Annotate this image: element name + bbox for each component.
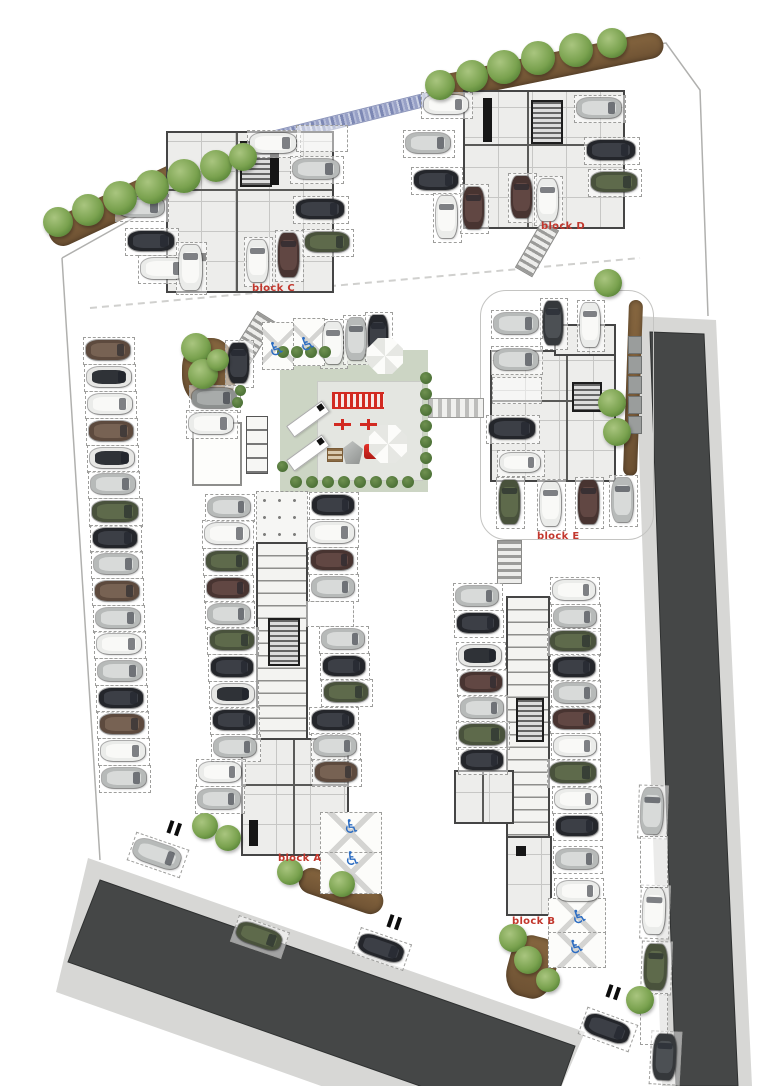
car-roof: [655, 1041, 675, 1073]
car-roof: [464, 727, 500, 741]
car-roof: [317, 713, 350, 727]
footbridge-to-block-e: [428, 398, 484, 418]
car-roof: [106, 744, 140, 758]
car: [580, 303, 600, 347]
car: [511, 176, 532, 218]
car: [97, 634, 141, 654]
car: [324, 682, 368, 702]
car: [652, 1033, 677, 1080]
car-roof: [133, 234, 169, 248]
car: [643, 944, 668, 991]
hedge-bush: [420, 388, 432, 400]
hedge-bush: [235, 385, 246, 396]
car-roof: [559, 739, 592, 753]
car-roof: [218, 713, 251, 727]
car: [95, 581, 139, 601]
car-roof: [104, 691, 138, 705]
parking-spot: [306, 601, 354, 627]
hedge-bush: [277, 461, 288, 472]
wall: [293, 740, 295, 854]
tree: [594, 269, 622, 297]
car: [189, 413, 233, 434]
car: [578, 480, 599, 524]
car: [312, 710, 354, 730]
hedge-bush: [338, 476, 350, 488]
car-roof: [555, 634, 591, 648]
car: [550, 631, 596, 651]
car-roof: [95, 451, 129, 465]
car: [554, 736, 596, 756]
car: [211, 657, 253, 677]
car-roof: [249, 247, 265, 276]
car: [311, 550, 353, 570]
car-roof: [348, 325, 364, 354]
car-roof: [280, 240, 296, 270]
car-roof: [328, 659, 361, 673]
car-roof: [542, 489, 558, 519]
car-roof: [103, 664, 137, 678]
stair-core: [268, 618, 300, 666]
car: [98, 661, 142, 681]
car: [456, 586, 498, 606]
parking-spot: [640, 836, 668, 888]
tree: [229, 143, 257, 171]
car: [305, 232, 349, 252]
car: [553, 580, 595, 600]
car: [86, 340, 130, 360]
hedge-bush: [386, 476, 398, 488]
car-roof: [213, 500, 246, 514]
tree: [192, 813, 218, 839]
car: [587, 140, 635, 160]
car-roof: [204, 765, 237, 779]
wall: [566, 352, 568, 480]
car: [312, 495, 354, 515]
shaft: [516, 846, 526, 856]
car: [554, 683, 596, 703]
car: [500, 453, 540, 472]
car-roof: [513, 183, 529, 212]
car-roof: [465, 194, 481, 223]
car-roof: [230, 349, 246, 376]
parking-spot: [492, 377, 542, 404]
car-roof: [327, 632, 360, 646]
car: [210, 630, 254, 650]
car: [550, 762, 596, 783]
car: [346, 318, 366, 360]
car-roof: [105, 717, 139, 731]
hedge-bush: [420, 404, 432, 416]
car: [250, 133, 296, 153]
car: [89, 421, 133, 441]
car: [577, 98, 621, 118]
car: [494, 349, 538, 370]
wheelchair-icon: ♿: [569, 906, 590, 928]
tree: [425, 70, 455, 100]
car-roof: [102, 637, 136, 651]
car: [323, 656, 365, 676]
car: [87, 367, 131, 387]
car-roof: [645, 895, 663, 927]
car-roof: [91, 343, 125, 357]
car: [591, 172, 637, 192]
car: [553, 657, 595, 677]
car: [314, 736, 356, 756]
tree: [626, 986, 654, 1014]
car-roof: [182, 252, 200, 283]
wc-stalls: [246, 416, 268, 474]
car-roof: [582, 101, 616, 115]
car-roof: [215, 633, 249, 647]
car: [128, 231, 174, 251]
tree: [487, 50, 521, 84]
car-roof: [466, 753, 499, 767]
seesaw: [334, 419, 351, 430]
car: [90, 448, 134, 468]
block-a-entrance-canopy: [257, 492, 307, 544]
car-roof: [96, 477, 130, 491]
shaft: [483, 98, 492, 142]
car-roof: [464, 648, 497, 662]
car-roof: [545, 308, 561, 338]
car-roof: [93, 397, 127, 411]
building-block-b-storage: [508, 598, 548, 838]
car: [212, 684, 254, 704]
car: [553, 709, 595, 729]
car-roof: [92, 370, 126, 384]
car: [543, 301, 563, 345]
car-roof: [539, 186, 555, 215]
car: [322, 629, 364, 649]
car-roof: [494, 421, 530, 435]
car-roof: [316, 553, 349, 567]
car-roof: [94, 424, 128, 438]
stair-core: [516, 698, 544, 742]
car-roof: [596, 175, 632, 189]
car-roof: [614, 485, 630, 515]
drain-grate: [628, 356, 642, 374]
car-roof: [101, 611, 135, 625]
car-roof: [97, 504, 133, 518]
hedge-bush: [306, 476, 318, 488]
wheelchair-icon: ♿: [343, 818, 360, 837]
car: [640, 788, 664, 835]
car: [88, 394, 132, 414]
car: [554, 607, 596, 627]
climbing-ladder: [327, 448, 343, 462]
car-roof: [461, 589, 494, 603]
block-label: block D: [541, 221, 585, 232]
car: [457, 613, 499, 633]
tree: [167, 159, 201, 193]
car: [555, 789, 597, 809]
block-label: block B: [512, 916, 555, 927]
car: [192, 388, 236, 408]
car-roof: [211, 554, 244, 568]
car: [556, 849, 598, 869]
car: [494, 313, 538, 334]
car-roof: [100, 584, 134, 598]
hedge-bush: [420, 468, 432, 480]
car: [414, 170, 458, 190]
car-roof: [643, 795, 661, 827]
hedge-bush: [420, 420, 432, 432]
tree: [559, 33, 593, 67]
hedge-bush: [402, 476, 414, 488]
car-roof: [558, 583, 591, 597]
car: [99, 688, 143, 708]
car-roof: [558, 712, 591, 726]
car: [460, 672, 502, 692]
car: [102, 768, 146, 788]
car-roof: [465, 675, 498, 689]
car-roof: [98, 531, 132, 545]
tree: [135, 170, 169, 204]
car-roof: [317, 498, 350, 512]
hedge-bush: [232, 397, 243, 408]
tree: [514, 946, 542, 974]
building-block-b-head: [508, 838, 550, 914]
car-roof: [501, 487, 517, 517]
car-roof: [562, 884, 595, 898]
tree: [597, 28, 627, 58]
car: [93, 528, 137, 548]
car-roof: [255, 136, 291, 150]
umbrella: [369, 425, 407, 463]
car: [278, 233, 299, 277]
block-label: block E: [537, 531, 579, 542]
car-roof: [320, 765, 353, 779]
parking-spot: [296, 125, 348, 152]
car-roof: [219, 740, 252, 754]
car: [612, 478, 633, 522]
car: [296, 199, 344, 219]
car: [499, 480, 520, 524]
car-roof: [499, 352, 533, 366]
building-block-b-annex: [456, 772, 512, 822]
car: [208, 604, 250, 624]
car: [228, 343, 249, 383]
car-roof: [561, 819, 594, 833]
car-roof: [315, 525, 349, 539]
car: [461, 698, 503, 718]
tree: [598, 389, 626, 417]
tree: [536, 968, 560, 992]
wheelchair-icon: ♿: [566, 936, 587, 958]
tree: [329, 871, 355, 897]
car-roof: [411, 136, 445, 150]
car: [100, 714, 144, 734]
car-roof: [217, 687, 250, 701]
car: [459, 724, 505, 745]
car: [556, 816, 598, 836]
car: [208, 497, 250, 517]
site-plan: Residential complex site plan — blocks A…: [0, 0, 768, 1086]
car-roof: [194, 416, 228, 430]
car-roof: [438, 203, 454, 232]
tree: [521, 41, 555, 75]
car-roof: [197, 391, 231, 405]
tree: [200, 150, 232, 182]
car-roof: [329, 685, 363, 699]
car-roof: [216, 660, 249, 674]
tree: [72, 194, 104, 226]
car-roof: [558, 660, 591, 674]
car-roof: [646, 951, 665, 983]
block-label: block C: [252, 283, 295, 294]
block-label: block A: [278, 853, 321, 864]
car: [91, 474, 135, 494]
car-roof: [210, 526, 244, 540]
car: [101, 741, 145, 761]
car: [540, 482, 561, 526]
hedge-bush: [420, 452, 432, 464]
shaft: [249, 820, 258, 846]
drain-grate: [628, 376, 642, 394]
drain-grate: [628, 336, 642, 354]
car: [179, 245, 202, 290]
car-roof: [107, 771, 141, 785]
elevator-core: [572, 382, 602, 412]
hedge-bush: [319, 346, 331, 358]
car: [642, 888, 666, 935]
car-roof: [582, 310, 598, 340]
car-roof: [555, 765, 591, 779]
hedge-bush: [290, 476, 302, 488]
car-roof: [317, 580, 350, 594]
car-roof: [213, 607, 246, 621]
drain-grate: [628, 396, 642, 414]
car: [436, 196, 457, 238]
car: [198, 789, 240, 809]
car-roof: [592, 143, 629, 157]
car-roof: [146, 261, 182, 275]
car: [205, 523, 249, 544]
car-roof: [203, 792, 236, 806]
car: [92, 501, 138, 522]
hedge-bush: [420, 436, 432, 448]
monkey-bars: [332, 392, 384, 409]
car: [537, 179, 558, 221]
car: [199, 762, 241, 782]
car: [310, 522, 354, 543]
building-block-a-corridor: [258, 544, 306, 742]
tree: [207, 349, 229, 371]
car-roof: [301, 202, 338, 216]
car-roof: [462, 616, 495, 630]
car-roof: [319, 739, 352, 753]
stair-core: [531, 100, 563, 144]
car: [489, 418, 535, 439]
car: [312, 577, 354, 597]
car-roof: [561, 852, 594, 866]
car: [463, 187, 484, 229]
tree: [603, 418, 631, 446]
hedge-bush: [354, 476, 366, 488]
car: [247, 240, 268, 282]
tree: [103, 181, 137, 215]
car-roof: [310, 235, 344, 249]
car: [94, 554, 138, 574]
car: [293, 159, 339, 179]
car-roof: [580, 487, 596, 517]
wall: [482, 772, 484, 822]
car-roof: [559, 686, 592, 700]
car: [207, 578, 249, 598]
car-roof: [298, 162, 334, 176]
car-roof: [559, 610, 592, 624]
car-roof: [499, 316, 533, 330]
car: [206, 551, 248, 571]
car: [315, 762, 357, 782]
car-roof: [466, 701, 499, 715]
seesaw: [360, 419, 377, 430]
car-roof: [212, 581, 245, 595]
car: [214, 737, 256, 757]
car: [213, 710, 255, 730]
car: [406, 133, 450, 153]
hedge-bush: [370, 476, 382, 488]
car-roof: [99, 557, 133, 571]
car: [557, 881, 599, 901]
car-roof: [429, 98, 463, 111]
car-roof: [560, 792, 593, 806]
crosswalk-block-e: [497, 540, 522, 584]
car-roof: [504, 456, 535, 469]
tree: [43, 207, 73, 237]
car-roof: [419, 173, 453, 187]
hedge-bush: [420, 372, 432, 384]
wheelchair-icon: ♿: [344, 850, 361, 869]
tree: [215, 825, 241, 851]
car: [96, 608, 140, 628]
car: [461, 750, 503, 770]
hedge-bush: [322, 476, 334, 488]
tree: [456, 60, 488, 92]
car: [459, 645, 501, 666]
